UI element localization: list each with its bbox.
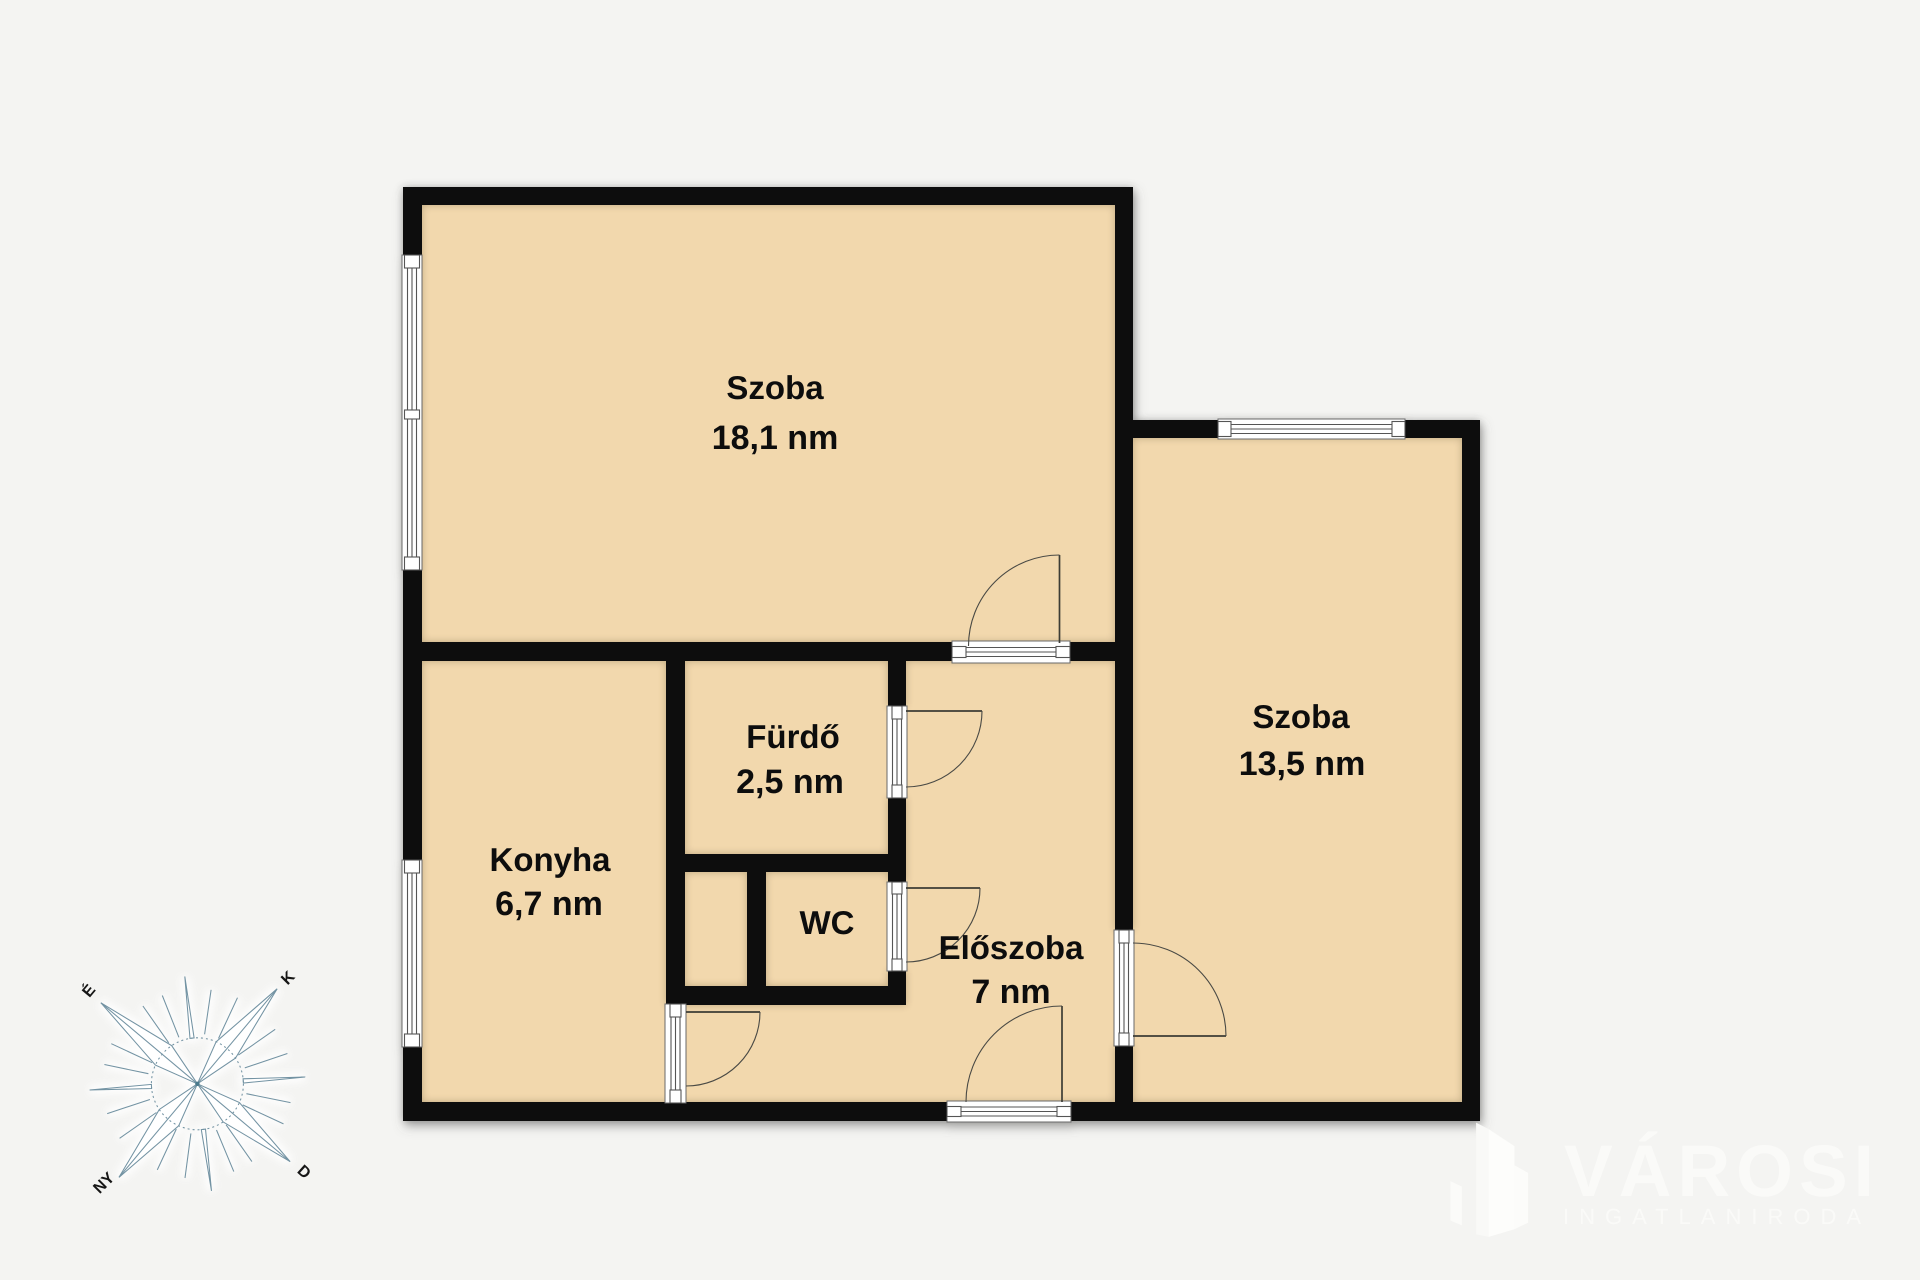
svg-text:Előszoba: Előszoba — [939, 929, 1085, 966]
svg-text:7 nm: 7 nm — [971, 973, 1050, 1011]
svg-text:2,5 nm: 2,5 nm — [736, 763, 844, 801]
svg-text:13,5 nm: 13,5 nm — [1239, 745, 1366, 783]
svg-text:Szoba: Szoba — [726, 369, 824, 406]
svg-text:6,7 nm: 6,7 nm — [495, 885, 603, 923]
svg-text:WC: WC — [800, 904, 855, 941]
svg-text:NY: NY — [90, 1169, 118, 1197]
svg-text:Szoba: Szoba — [1252, 698, 1350, 735]
svg-text:Fürdő: Fürdő — [746, 718, 839, 755]
svg-text:Konyha: Konyha — [489, 841, 611, 878]
svg-text:18,1 nm: 18,1 nm — [712, 419, 839, 457]
svg-text:INGATLANIRODA: INGATLANIRODA — [1563, 1204, 1871, 1229]
svg-text:K: K — [278, 968, 299, 989]
svg-text:D: D — [294, 1162, 314, 1182]
svg-text:VÁROSI: VÁROSI — [1564, 1131, 1880, 1212]
svg-text:É: É — [78, 980, 100, 1001]
